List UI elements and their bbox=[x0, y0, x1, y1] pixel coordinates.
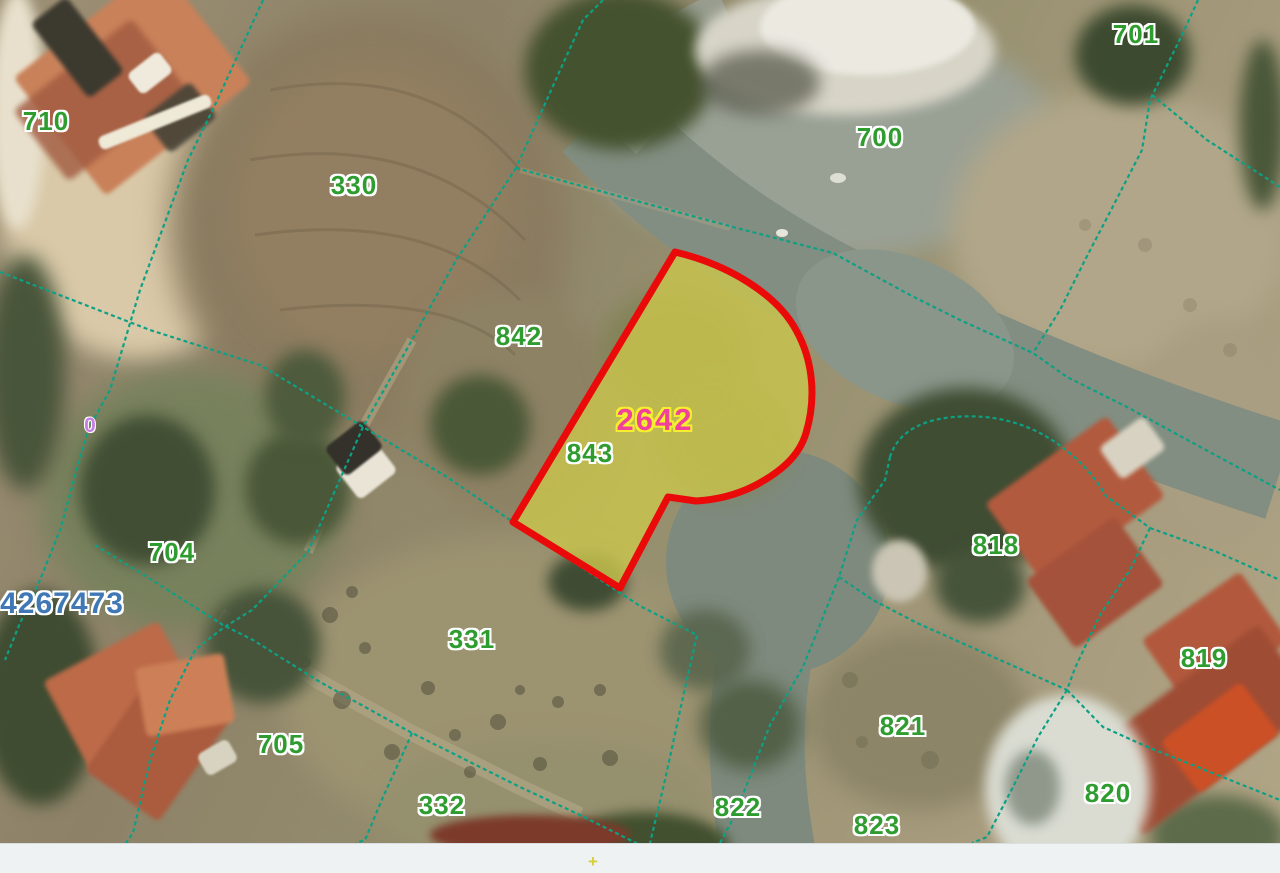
parcel-label-818: 818 bbox=[973, 532, 1019, 558]
parcel-label-330: 330 bbox=[331, 172, 377, 198]
parcel-label-700: 700 bbox=[857, 124, 903, 150]
parcel-label-842: 842 bbox=[496, 323, 542, 349]
parcel-label-332: 332 bbox=[419, 792, 465, 818]
parcel-label-843: 843 bbox=[567, 440, 613, 466]
parcel-label-710: 710 bbox=[23, 108, 69, 134]
parcel-label-823: 823 bbox=[854, 812, 900, 838]
highlighted-parcel-label: 2642 bbox=[617, 402, 694, 438]
parcel-label-820: 820 bbox=[1085, 780, 1131, 806]
parcel-label-331: 331 bbox=[449, 626, 495, 652]
cadastral-map-view[interactable]: 7103307007018428437047053313328188198208… bbox=[0, 0, 1280, 873]
parcel-label-705: 705 bbox=[258, 731, 304, 757]
parcel-label-819: 819 bbox=[1181, 645, 1227, 671]
zero-label: 0 bbox=[84, 414, 96, 438]
satellite-map[interactable]: 7103307007018428437047053313328188198208… bbox=[0, 0, 1280, 843]
reference-number-label: 4267473 bbox=[0, 587, 124, 621]
parcel-label-701: 701 bbox=[1113, 21, 1159, 47]
parcel-label-822: 822 bbox=[715, 794, 761, 820]
parcel-label-704: 704 bbox=[149, 539, 195, 565]
parcel-label-821: 821 bbox=[880, 713, 926, 739]
map-marker-plus: + bbox=[588, 853, 598, 870]
bottom-bar: + bbox=[0, 843, 1280, 873]
